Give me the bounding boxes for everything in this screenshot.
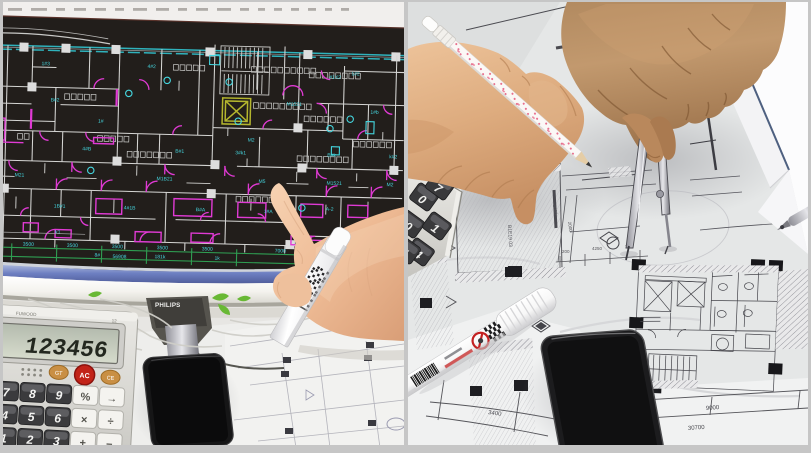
svg-text:M21: M21 [15,172,25,178]
svg-text:1#A: 1#A [264,209,274,215]
svg-text:9: 9 [55,388,63,402]
svg-text:PHILIPS: PHILIPS [155,302,180,309]
svg-text:CE: CE [106,376,114,382]
svg-text:M5: M5 [258,179,265,185]
svg-text:→: → [106,393,118,406]
svg-text:8: 8 [29,387,37,401]
svg-text:M2: M2 [248,138,255,144]
svg-text:+: + [79,437,86,448]
svg-text:9000: 9000 [706,405,720,412]
svg-text:30700: 30700 [688,425,706,432]
svg-text:1k: 1k [214,256,220,262]
svg-text:#1X2: #1X2 [329,75,341,81]
svg-text:−: − [106,439,113,448]
svg-text:3500: 3500 [23,242,34,248]
svg-text:GT: GT [55,371,64,377]
svg-text:3: 3 [53,434,61,448]
svg-text:B#2: B#2 [51,97,60,103]
svg-text:56908: 56908 [112,254,126,260]
svg-text:8#: 8# [94,253,100,259]
svg-text:4#2: 4#2 [147,64,156,70]
svg-text:12: 12 [112,318,118,323]
svg-text:1#2: 1#2 [351,71,360,77]
svg-text:1#3: 1#3 [41,61,50,67]
svg-text:5: 5 [27,410,35,424]
svg-text:4#B: 4#B [82,146,92,152]
svg-text:B1E19 03: B1E19 03 [506,225,513,247]
svg-text:M2: M2 [386,182,393,188]
svg-text:×: × [81,414,88,426]
svg-text:6: 6 [54,411,62,425]
svg-text:1: 1 [0,431,7,445]
svg-text:3500: 3500 [67,243,78,249]
svg-text:4250: 4250 [592,246,603,251]
svg-text:k1: k1 [55,230,61,236]
svg-text:181k: 181k [154,254,165,260]
svg-text:÷: ÷ [107,416,114,428]
svg-text:M1521: M1521 [326,181,342,187]
svg-text:4: 4 [0,408,9,422]
svg-text:B#A: B#A [196,207,206,213]
svg-text:3#k1: 3#k1 [235,150,246,156]
svg-text:AC: AC [79,373,89,381]
svg-text:7000: 7000 [275,248,286,254]
svg-text:3500: 3500 [157,245,168,251]
svg-text:B#1: B#1 [175,149,184,155]
svg-text:A-2: A-2 [326,207,334,213]
svg-text:3500: 3500 [112,244,123,250]
svg-text:k#2: k#2 [389,154,397,160]
svg-text:200: 200 [562,249,570,254]
svg-text:4#1B: 4#1B [124,205,136,211]
svg-text:2: 2 [25,433,34,447]
svg-text:1#b: 1#b [370,110,379,116]
svg-text:1B#1: 1B#1 [54,203,66,209]
svg-text:M1B21: M1B21 [156,176,172,182]
svg-text:1#: 1# [98,119,104,125]
svg-text:M1521: M1521 [286,102,302,108]
svg-text:123456: 123456 [23,334,110,364]
svg-text:%: % [80,391,91,404]
svg-text:3500: 3500 [202,246,213,252]
